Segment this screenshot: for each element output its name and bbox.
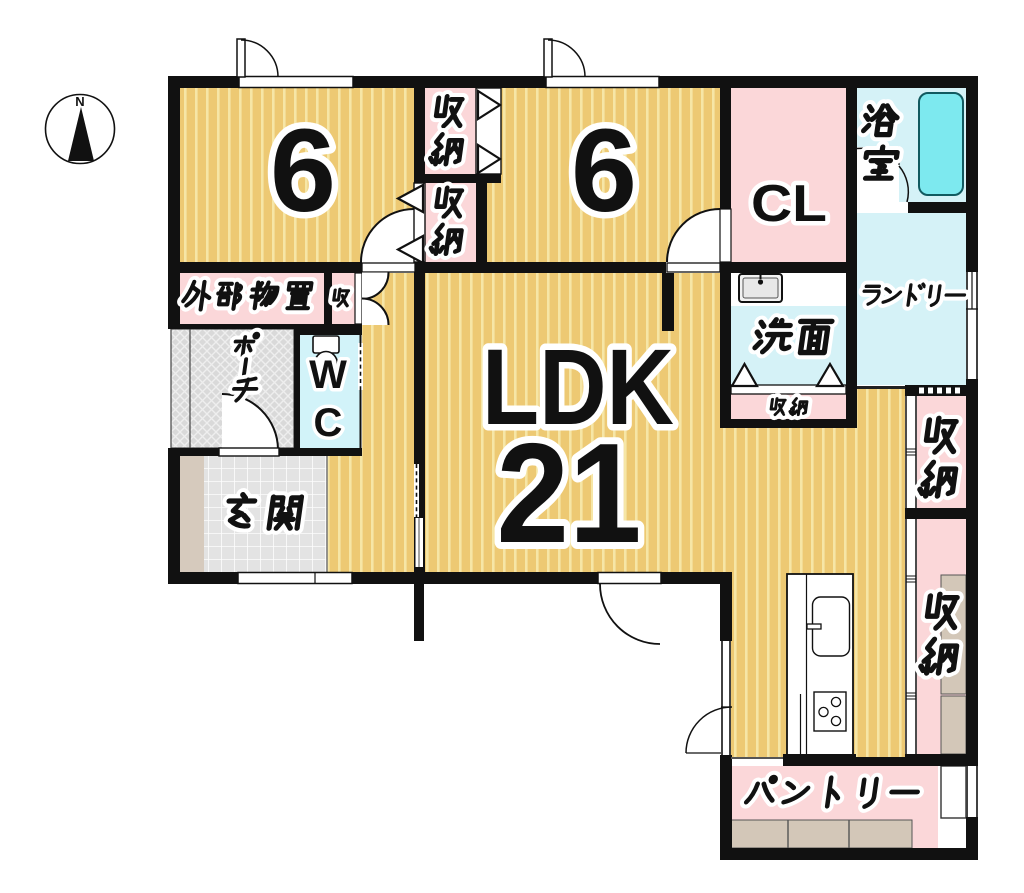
svg-text:C: C [314, 401, 343, 445]
svg-text:21: 21 [497, 414, 642, 573]
svg-text:W: W [309, 353, 347, 397]
svg-text:6: 6 [571, 105, 637, 237]
svg-text:N: N [75, 94, 84, 109]
svg-text:CL: CL [751, 175, 827, 233]
svg-text:6: 6 [270, 105, 336, 237]
